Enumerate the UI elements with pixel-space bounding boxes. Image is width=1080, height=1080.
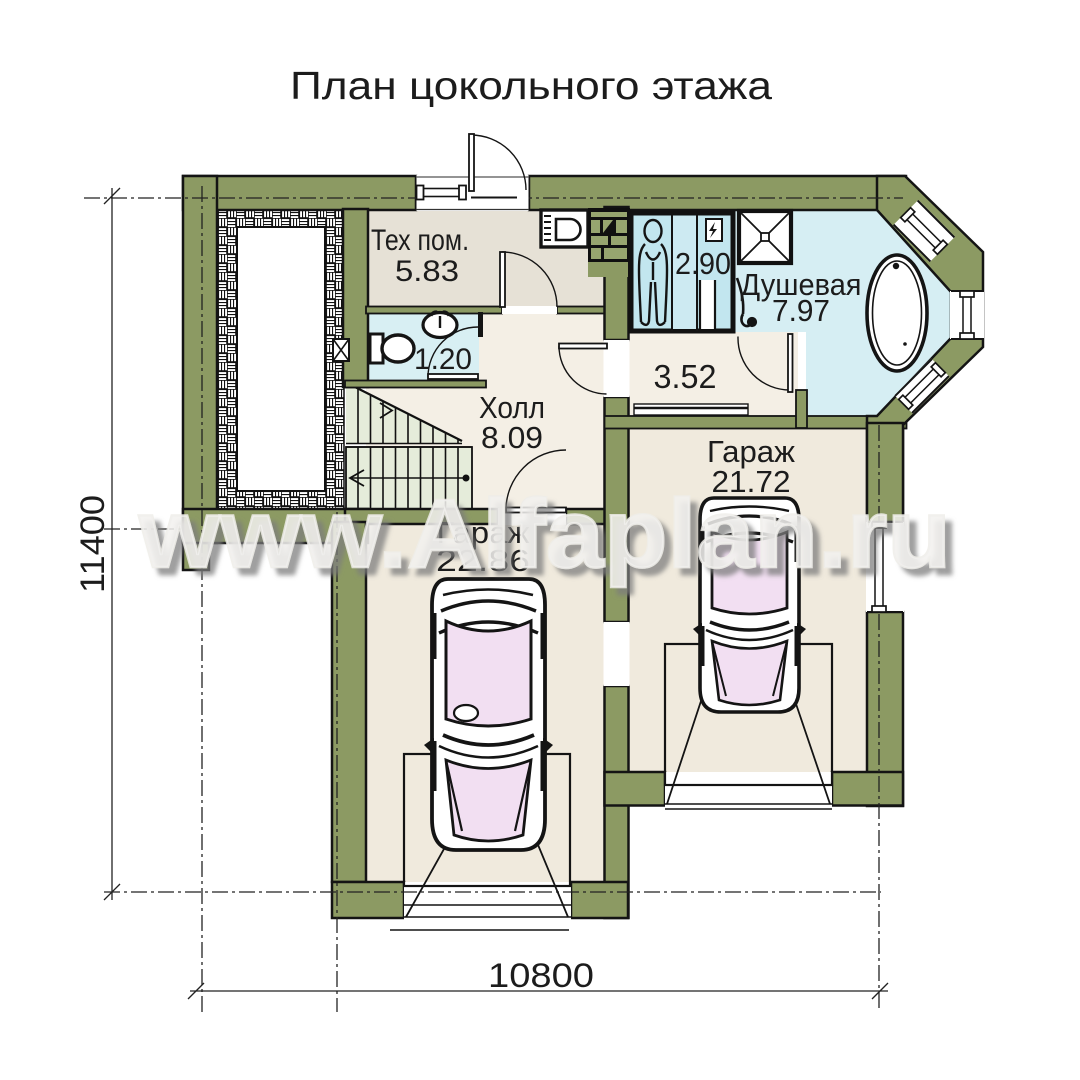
svg-text:11400: 11400 — [74, 495, 112, 593]
svg-text:2.90: 2.90 — [675, 246, 731, 281]
svg-text:1.20: 1.20 — [414, 343, 472, 376]
svg-text:План цокольного этажа: План цокольного этажа — [290, 65, 772, 108]
svg-text:3.52: 3.52 — [654, 358, 717, 395]
svg-text:Тех пом.: Тех пом. — [371, 224, 469, 257]
svg-text:10800: 10800 — [488, 957, 594, 995]
svg-text:5.83: 5.83 — [395, 255, 459, 288]
svg-text:8.09: 8.09 — [481, 420, 543, 455]
svg-text:www.Alfaplan.ru: www.Alfaplan.ru — [138, 479, 951, 588]
svg-text:7.97: 7.97 — [772, 293, 830, 328]
